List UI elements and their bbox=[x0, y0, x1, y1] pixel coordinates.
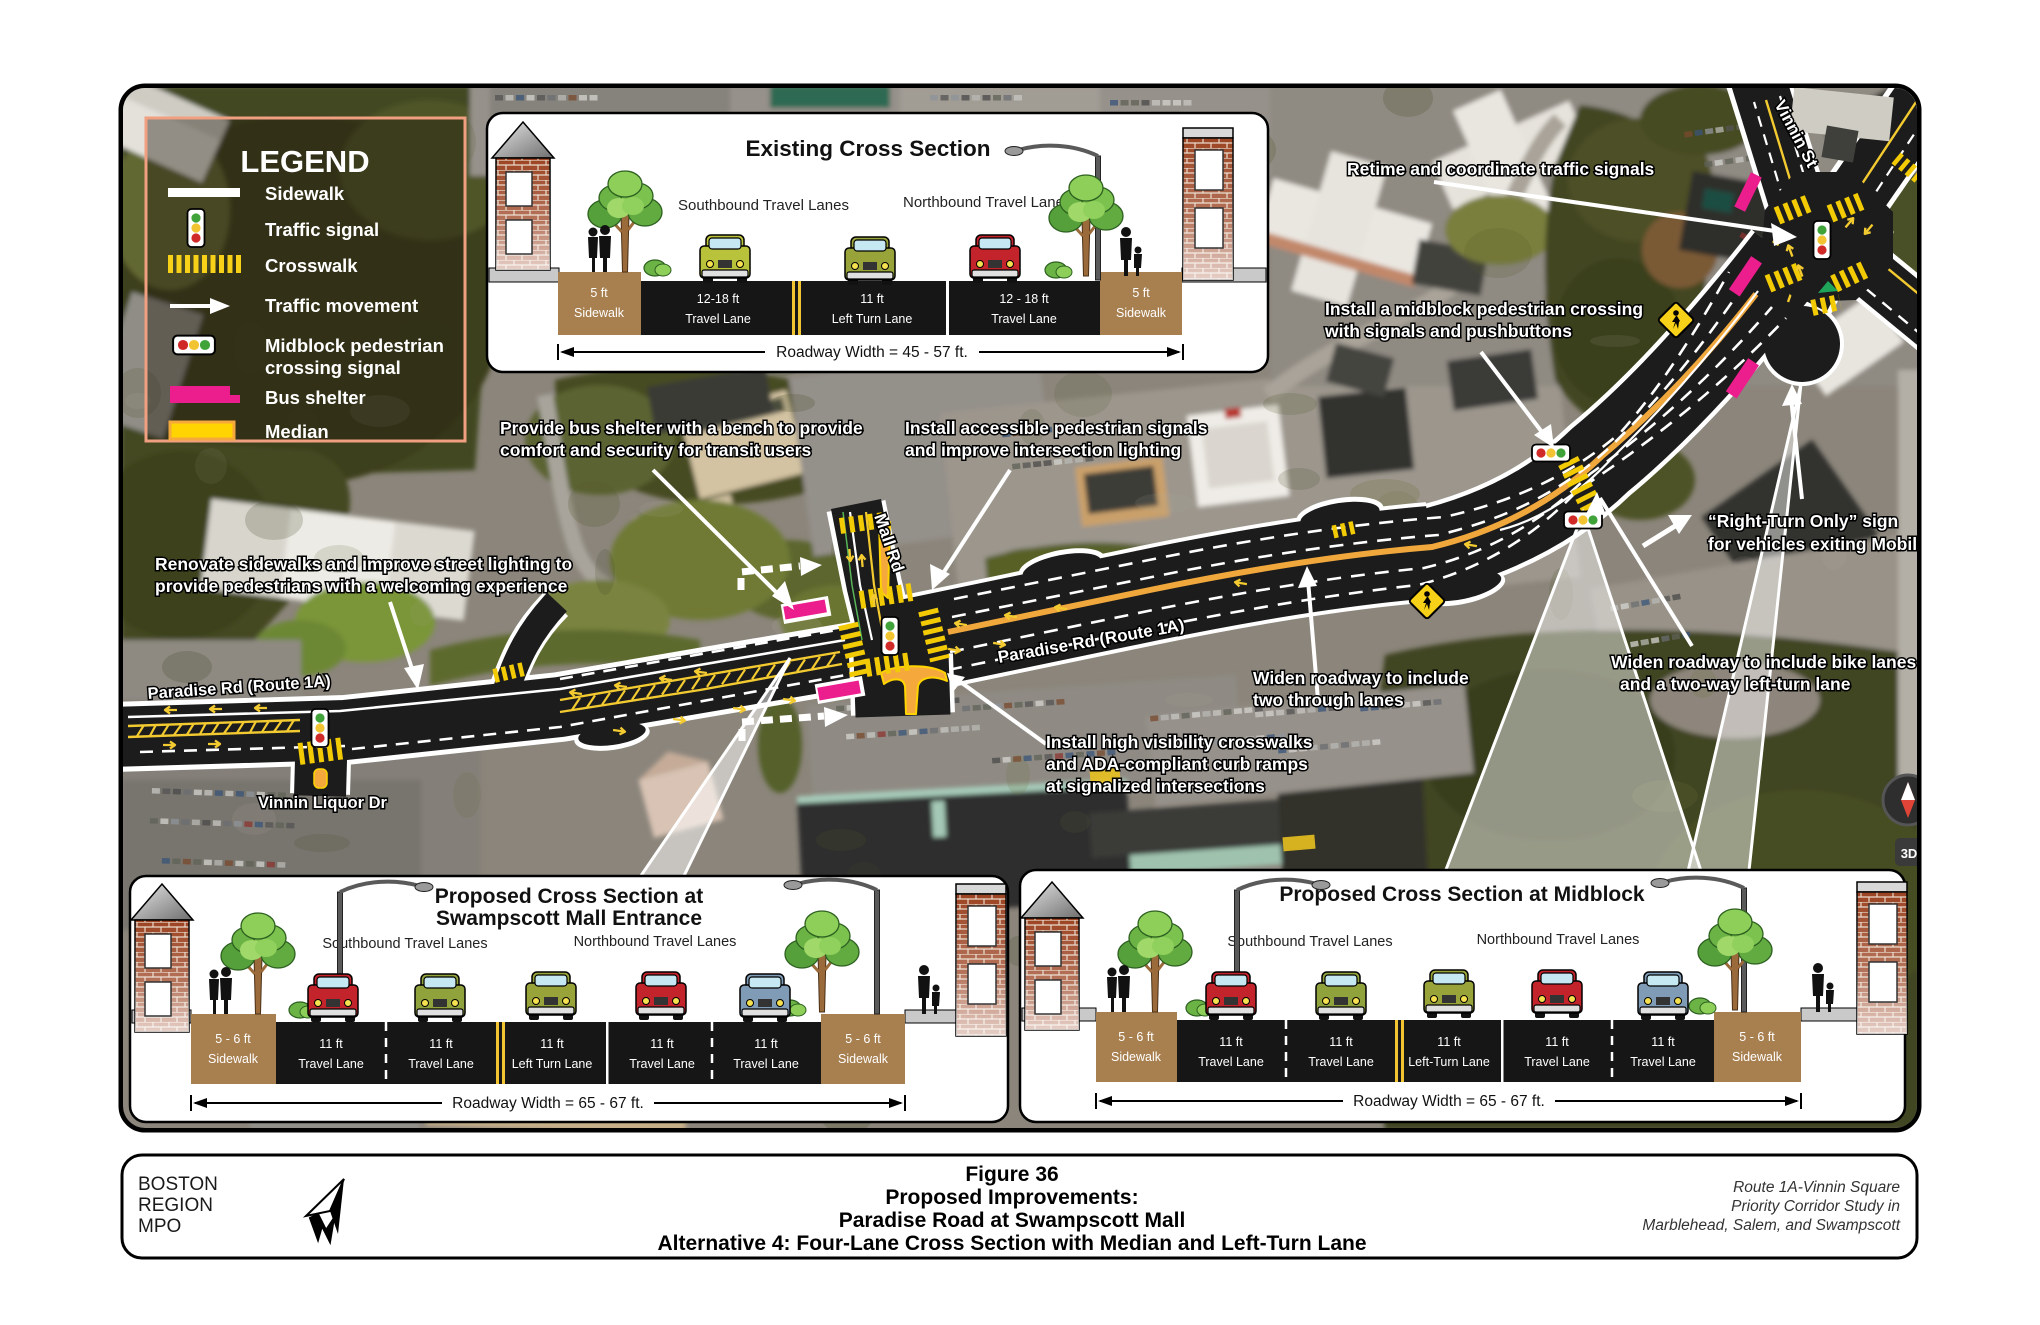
svg-text:Install accessible pedestrian: Install accessible pedestrian signals bbox=[905, 418, 1208, 438]
svg-text:5 ft: 5 ft bbox=[590, 286, 608, 300]
svg-text:Median: Median bbox=[265, 421, 329, 442]
svg-text:Northbound Travel Lanes: Northbound Travel Lanes bbox=[1477, 932, 1640, 948]
svg-text:11 ft: 11 ft bbox=[754, 1037, 778, 1051]
svg-text:Roadway Width = 65 - 67 ft.: Roadway Width = 65 - 67 ft. bbox=[1353, 1093, 1545, 1110]
svg-text:Roadway Width = 65 - 67 ft.: Roadway Width = 65 - 67 ft. bbox=[452, 1095, 644, 1112]
svg-text:at signalized intersections: at signalized intersections bbox=[1046, 776, 1265, 796]
svg-text:LEGEND: LEGEND bbox=[240, 144, 369, 179]
svg-text:and a two-way left-turn lane: and a two-way left-turn lane bbox=[1620, 674, 1851, 694]
svg-text:Swampscott Mall Entrance: Swampscott Mall Entrance bbox=[436, 907, 702, 930]
svg-text:Left Turn Lane: Left Turn Lane bbox=[832, 312, 913, 326]
svg-text:Southbound Travel Lanes: Southbound Travel Lanes bbox=[1227, 934, 1392, 950]
svg-text:Widen roadway to include: Widen roadway to include bbox=[1253, 668, 1469, 688]
svg-text:Figure 36: Figure 36 bbox=[965, 1163, 1058, 1186]
svg-text:Sidewalk: Sidewalk bbox=[208, 1052, 259, 1066]
svg-text:for vehicles exiting Mobil: for vehicles exiting Mobil bbox=[1708, 534, 1917, 554]
svg-text:Renovate sidewalks and improve: Renovate sidewalks and improve street li… bbox=[155, 554, 572, 574]
svg-text:Southbound Travel Lanes: Southbound Travel Lanes bbox=[322, 936, 487, 952]
svg-text:Priority Corridor Study in: Priority Corridor Study in bbox=[1731, 1198, 1900, 1215]
svg-text:5 - 6 ft: 5 - 6 ft bbox=[845, 1032, 881, 1046]
svg-text:Proposed Improvements:: Proposed Improvements: bbox=[885, 1186, 1138, 1209]
svg-text:Bus shelter: Bus shelter bbox=[265, 387, 366, 408]
svg-text:11 ft: 11 ft bbox=[860, 292, 884, 306]
svg-text:Travel Lane: Travel Lane bbox=[1630, 1055, 1696, 1069]
svg-text:two through lanes: two through lanes bbox=[1253, 690, 1404, 710]
svg-text:Travel Lane: Travel Lane bbox=[733, 1057, 799, 1071]
svg-text:Sidewalk: Sidewalk bbox=[838, 1052, 889, 1066]
svg-text:11 ft: 11 ft bbox=[540, 1037, 564, 1051]
svg-text:Roadway Width = 45 - 57 ft.: Roadway Width = 45 - 57 ft. bbox=[776, 344, 968, 361]
svg-text:3D: 3D bbox=[1901, 846, 1918, 861]
svg-text:12 - 18 ft: 12 - 18 ft bbox=[999, 292, 1049, 306]
svg-text:Traffic signal: Traffic signal bbox=[265, 219, 379, 240]
svg-text:11 ft: 11 ft bbox=[1651, 1035, 1675, 1049]
svg-text:11 ft: 11 ft bbox=[1437, 1035, 1461, 1049]
svg-text:Existing Cross Section: Existing Cross Section bbox=[745, 136, 990, 161]
svg-text:Sidewalk: Sidewalk bbox=[574, 306, 625, 320]
svg-text:Proposed Cross Section at Midb: Proposed Cross Section at Midblock bbox=[1279, 883, 1645, 906]
svg-text:comfort and security for trans: comfort and security for transit users bbox=[500, 440, 811, 460]
svg-text:Left Turn Lane: Left Turn Lane bbox=[512, 1057, 593, 1071]
svg-text:Install a midblock pedestrian: Install a midblock pedestrian crossing bbox=[1325, 299, 1643, 319]
svg-text:and improve intersection light: and improve intersection lighting bbox=[905, 440, 1181, 460]
svg-text:Retime and coordinate traffic: Retime and coordinate traffic signals bbox=[1347, 159, 1655, 179]
svg-text:11 ft: 11 ft bbox=[650, 1037, 674, 1051]
svg-text:Midblock pedestrian: Midblock pedestrian bbox=[265, 335, 444, 356]
svg-text:5 - 6 ft: 5 - 6 ft bbox=[1739, 1030, 1775, 1044]
svg-text:11 ft: 11 ft bbox=[319, 1037, 343, 1051]
svg-text:with signals and pushbuttons: with signals and pushbuttons bbox=[1324, 321, 1572, 341]
svg-text:Traffic movement: Traffic movement bbox=[265, 295, 418, 316]
svg-text:Widen roadway to include bike: Widen roadway to include bike lanes bbox=[1611, 652, 1916, 672]
svg-text:Travel Lane: Travel Lane bbox=[629, 1057, 695, 1071]
svg-text:and ADA-compliant curb ramps: and ADA-compliant curb ramps bbox=[1046, 754, 1308, 774]
svg-text:Marblehead, Salem, and Swampsc: Marblehead, Salem, and Swampscott bbox=[1642, 1217, 1900, 1234]
svg-text:12-18 ft: 12-18 ft bbox=[697, 292, 740, 306]
svg-text:REGION: REGION bbox=[138, 1195, 213, 1216]
svg-text:Travel Lane: Travel Lane bbox=[408, 1057, 474, 1071]
svg-text:Travel Lane: Travel Lane bbox=[1198, 1055, 1264, 1069]
svg-text:Sidewalk: Sidewalk bbox=[1732, 1050, 1783, 1064]
svg-text:Alternative 4: Four-Lane Cross: Alternative 4: Four-Lane Cross Section w… bbox=[657, 1232, 1366, 1255]
svg-text:Travel Lane: Travel Lane bbox=[1308, 1055, 1374, 1069]
svg-text:“Right-Turn Only” sign: “Right-Turn Only” sign bbox=[1708, 511, 1898, 531]
svg-text:Southbound Travel Lanes: Southbound Travel Lanes bbox=[678, 197, 849, 214]
svg-text:Travel Lane: Travel Lane bbox=[1524, 1055, 1590, 1069]
svg-text:Left-Turn Lane: Left-Turn Lane bbox=[1408, 1055, 1490, 1069]
svg-text:5 - 6 ft: 5 - 6 ft bbox=[1118, 1030, 1154, 1044]
svg-text:Sidewalk: Sidewalk bbox=[265, 183, 345, 204]
svg-text:Travel Lane: Travel Lane bbox=[298, 1057, 364, 1071]
svg-text:Northbound Travel Lanes: Northbound Travel Lanes bbox=[903, 194, 1071, 211]
svg-text:Northbound Travel Lanes: Northbound Travel Lanes bbox=[574, 934, 737, 950]
svg-text:Sidewalk: Sidewalk bbox=[1111, 1050, 1162, 1064]
svg-text:11 ft: 11 ft bbox=[429, 1037, 453, 1051]
svg-text:Provide bus shelter with a ben: Provide bus shelter with a bench to prov… bbox=[500, 418, 863, 438]
svg-text:BOSTON: BOSTON bbox=[138, 1174, 218, 1195]
svg-text:Paradise Road at Swampscott Ma: Paradise Road at Swampscott Mall bbox=[839, 1209, 1186, 1232]
svg-text:5 ft: 5 ft bbox=[1132, 286, 1150, 300]
svg-text:Travel Lane: Travel Lane bbox=[685, 312, 751, 326]
svg-text:11 ft: 11 ft bbox=[1219, 1035, 1243, 1049]
svg-text:MPO: MPO bbox=[138, 1216, 181, 1237]
svg-text:Proposed Cross Section at: Proposed Cross Section at bbox=[435, 885, 703, 908]
svg-text:crossing signal: crossing signal bbox=[265, 357, 401, 378]
svg-text:5 - 6 ft: 5 - 6 ft bbox=[215, 1032, 251, 1046]
svg-text:Route 1A-Vinnin Square: Route 1A-Vinnin Square bbox=[1733, 1179, 1900, 1196]
svg-text:11 ft: 11 ft bbox=[1329, 1035, 1353, 1049]
svg-text:Install high visibility crossw: Install high visibility crosswalks bbox=[1046, 732, 1313, 752]
svg-text:Crosswalk: Crosswalk bbox=[265, 255, 358, 276]
svg-text:11 ft: 11 ft bbox=[1545, 1035, 1569, 1049]
svg-text:provide pedestrians with a wel: provide pedestrians with a welcoming exp… bbox=[155, 576, 568, 596]
svg-text:Sidewalk: Sidewalk bbox=[1116, 306, 1167, 320]
svg-text:Travel Lane: Travel Lane bbox=[991, 312, 1057, 326]
svg-text:Vinnin Liquor Dr: Vinnin Liquor Dr bbox=[258, 794, 388, 812]
